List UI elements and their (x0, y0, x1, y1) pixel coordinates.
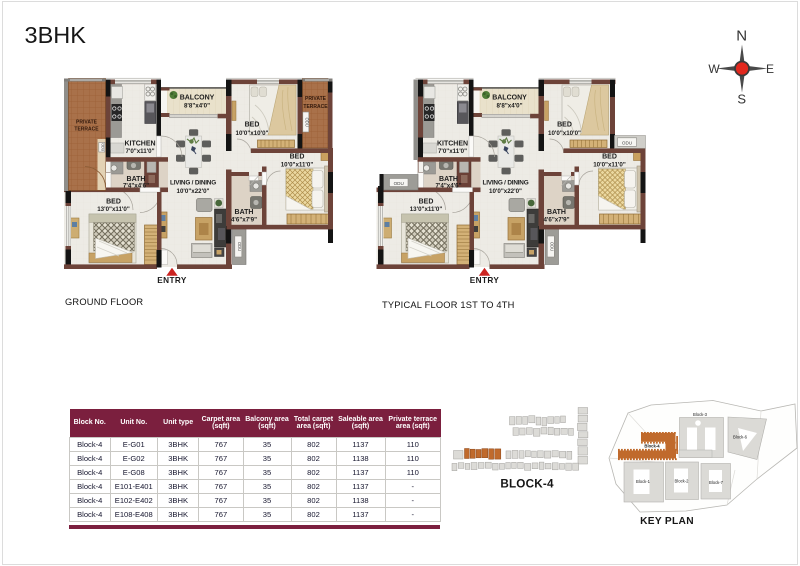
svg-text:Block-7: Block-7 (709, 480, 724, 485)
svg-text:S: S (737, 92, 746, 107)
svg-text:E: E (766, 62, 774, 76)
svg-text:TERRACE: TERRACE (303, 104, 328, 110)
svg-text:PRIVATE: PRIVATE (76, 120, 98, 126)
svg-text:N: N (736, 28, 747, 45)
svg-text:Block-4: Block-4 (644, 444, 660, 449)
svg-text:KEY PLAN: KEY PLAN (640, 516, 694, 527)
svg-text:PRIVATE: PRIVATE (305, 96, 327, 102)
svg-text:W: W (708, 62, 720, 76)
svg-text:ODU: ODU (394, 181, 404, 186)
svg-text:BLOCK-4: BLOCK-4 (500, 478, 554, 491)
svg-text:Block-2: Block-2 (675, 479, 690, 484)
svg-text:ODU: ODU (622, 140, 632, 145)
svg-text:ODU: ODU (101, 143, 105, 151)
svg-text:TERRACE: TERRACE (74, 127, 99, 133)
svg-text:Block-1: Block-1 (636, 479, 651, 484)
svg-text:ODU: ODU (304, 117, 309, 126)
svg-text:Block-3: Block-3 (693, 412, 708, 417)
svg-text:Block-6: Block-6 (733, 435, 748, 440)
